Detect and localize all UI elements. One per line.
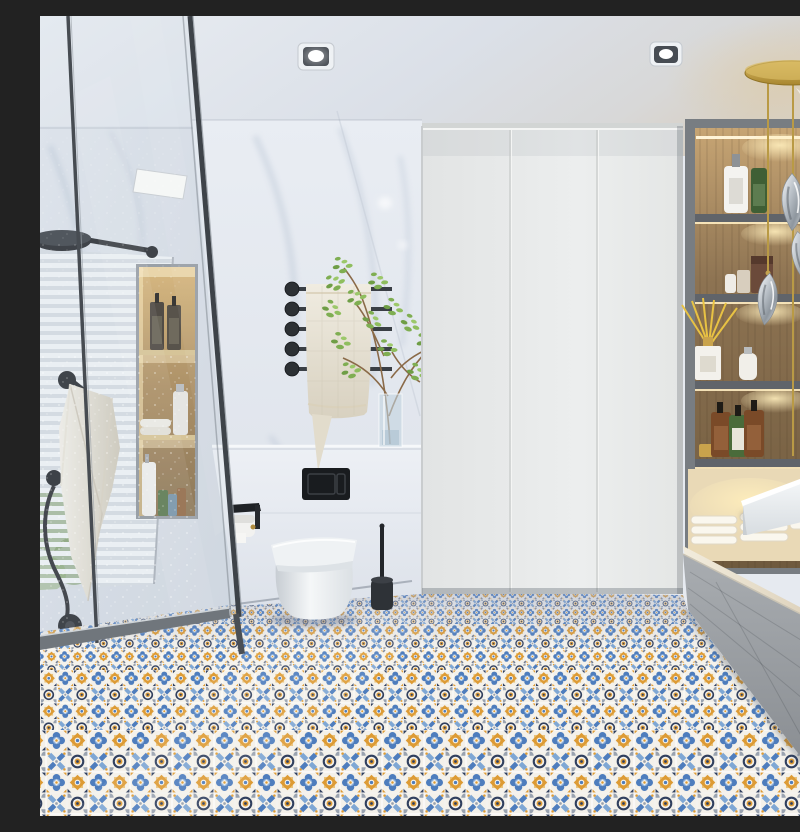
recessed-downlight-left xyxy=(298,43,334,70)
glass-vase xyxy=(379,394,402,447)
bathroom-render xyxy=(40,16,800,816)
recessed-downlight-right xyxy=(650,42,682,66)
bathroom-photo: Modern bathroom render: walk-in glass sh… xyxy=(40,16,800,816)
white-wardrobe-cabinet xyxy=(422,123,683,594)
flush-plate xyxy=(302,468,350,500)
